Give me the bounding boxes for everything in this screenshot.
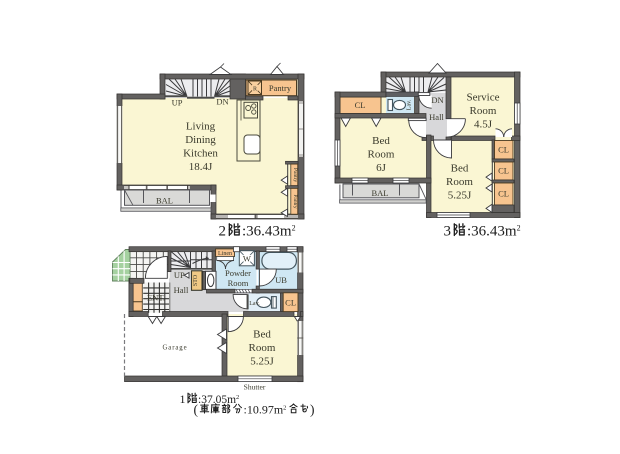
- svg-text:18.4J: 18.4J: [189, 161, 213, 173]
- svg-text::36.43m2: :36.43m2: [467, 224, 521, 240]
- svg-text:Living: Living: [186, 121, 216, 133]
- svg-text:CL: CL: [355, 100, 366, 110]
- svg-text:): ): [310, 402, 315, 417]
- svg-text:Dining: Dining: [185, 134, 216, 146]
- svg-text:CL: CL: [285, 297, 296, 307]
- svg-text:Lav.: Lav.: [249, 301, 260, 307]
- svg-text:Bed: Bed: [451, 163, 469, 175]
- svg-text:6J: 6J: [376, 162, 387, 174]
- svg-text:Bed: Bed: [253, 329, 271, 341]
- svg-text:Room: Room: [446, 176, 473, 188]
- svg-text:UP: UP: [174, 270, 185, 280]
- svg-text:Kitchen: Kitchen: [183, 148, 218, 160]
- svg-text:UP: UP: [172, 98, 183, 108]
- svg-text:3: 3: [444, 224, 452, 240]
- svg-text::36.43m2: :36.43m2: [242, 224, 296, 240]
- svg-text:1: 1: [180, 392, 186, 406]
- svg-text:Room: Room: [228, 278, 249, 288]
- svg-text:W: W: [243, 254, 251, 264]
- svg-text:5.25J: 5.25J: [448, 190, 472, 202]
- svg-text:ENT.: ENT.: [147, 293, 165, 303]
- svg-text:Service: Service: [467, 92, 500, 104]
- svg-text:DN: DN: [431, 95, 443, 105]
- svg-text::10.97m2: :10.97m2: [244, 403, 287, 417]
- svg-text:Powder: Powder: [225, 268, 251, 278]
- svg-text:Room: Room: [470, 105, 497, 117]
- svg-text:Lav.: Lav.: [407, 99, 413, 110]
- svg-text:Hall: Hall: [174, 285, 189, 295]
- svg-text:BAL: BAL: [372, 188, 389, 198]
- svg-text:(: (: [194, 402, 199, 417]
- svg-text:Bed: Bed: [372, 135, 390, 147]
- svg-text:Linen: Linen: [218, 251, 232, 257]
- svg-text:2: 2: [219, 224, 227, 240]
- svg-text:CL: CL: [498, 166, 509, 176]
- svg-text:5.25J: 5.25J: [250, 356, 274, 368]
- svg-text:Pantry: Pantry: [269, 83, 292, 93]
- svg-text:Garage: Garage: [162, 345, 187, 352]
- svg-text:STO: STO: [193, 274, 199, 286]
- svg-text:CL: CL: [498, 189, 509, 199]
- svg-text:DN: DN: [216, 97, 228, 107]
- svg-text:BAL: BAL: [156, 196, 173, 206]
- svg-text:Pantry: Pantry: [292, 168, 298, 183]
- svg-text:Room: Room: [249, 342, 276, 354]
- svg-text:CL: CL: [498, 145, 509, 155]
- svg-text:Hall: Hall: [429, 112, 444, 122]
- svg-text:Room: Room: [368, 149, 395, 161]
- svg-text:R: R: [253, 86, 257, 92]
- svg-text:4.5J: 4.5J: [474, 119, 493, 131]
- svg-text:Shutter: Shutter: [244, 383, 266, 392]
- svg-text:Pantry: Pantry: [292, 194, 298, 209]
- svg-text:UB: UB: [275, 275, 287, 285]
